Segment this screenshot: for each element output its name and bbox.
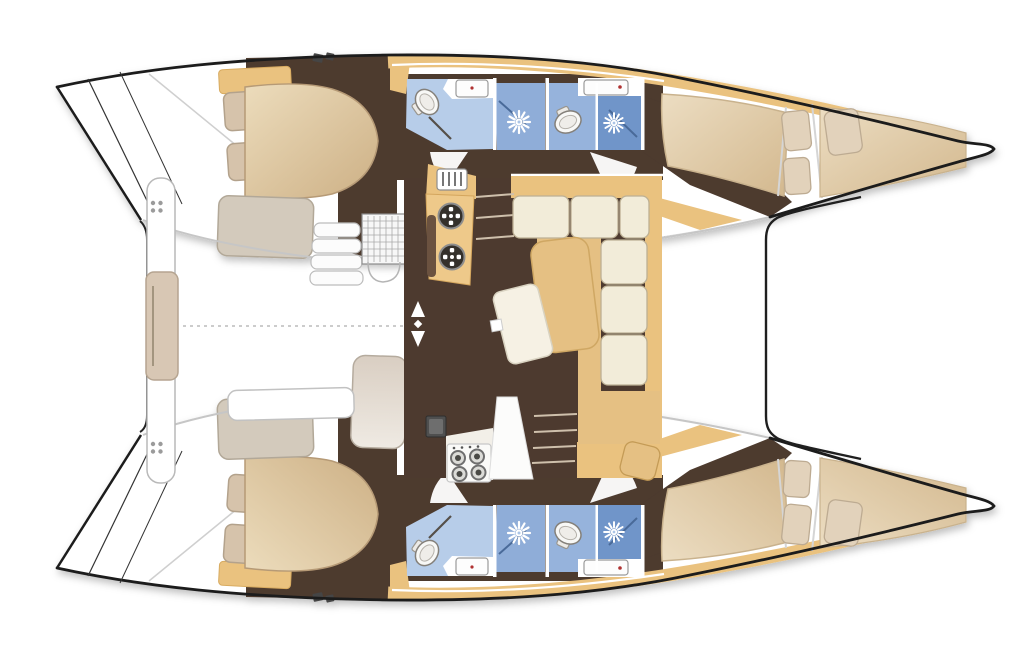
galley-sink-top <box>437 169 467 190</box>
sofa-cushion <box>513 196 569 238</box>
galley <box>426 164 476 285</box>
sofa-cushion <box>601 286 647 333</box>
catamaran-floor-plan <box>0 0 1024 655</box>
forward-bulkhead <box>766 197 861 459</box>
nav-chair <box>368 262 400 282</box>
sofa-cushion <box>601 335 647 385</box>
fiddle-rail <box>427 215 436 277</box>
salon-top-wall <box>511 176 662 198</box>
floor-marker <box>490 319 503 332</box>
sofa-cushion <box>571 196 618 238</box>
berth-sheet <box>228 387 355 420</box>
aft-bench-cushion <box>146 272 178 380</box>
nav-table <box>362 214 406 282</box>
salon <box>404 164 663 482</box>
galley-appliance-inner <box>429 419 443 434</box>
sofa-cushion <box>601 240 647 284</box>
cockpit-bench <box>350 355 407 449</box>
sofa-cushion <box>620 196 649 238</box>
floor-plan-canvas <box>0 0 1024 655</box>
